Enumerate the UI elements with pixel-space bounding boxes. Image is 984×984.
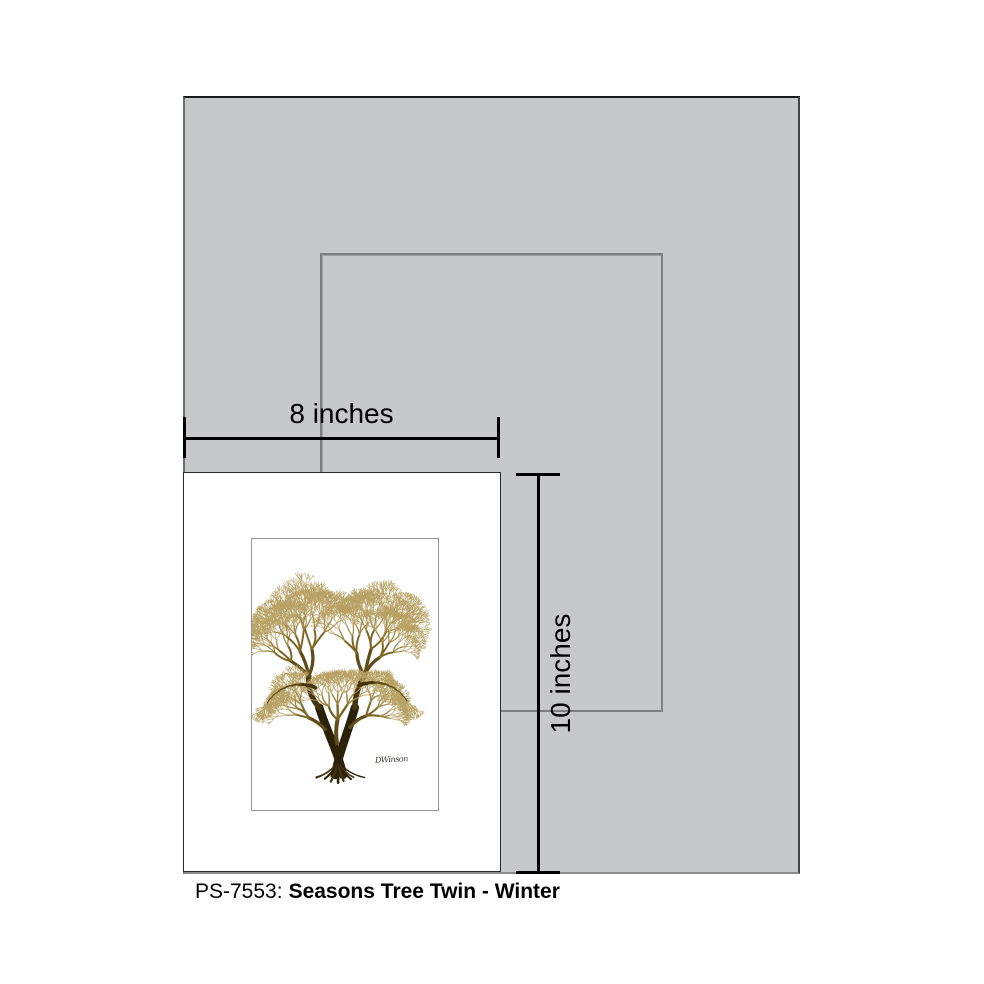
height-dimension-label: 10 inches xyxy=(546,474,578,873)
width-dimension-line xyxy=(183,437,500,440)
product-caption: PS-7553:Seasons Tree Twin - Winter xyxy=(195,880,560,904)
print-preview: DWinson xyxy=(183,472,501,872)
print-image-area: DWinson xyxy=(251,538,439,811)
product-title: Seasons Tree Twin - Winter xyxy=(289,880,560,903)
artist-signature: DWinson xyxy=(375,754,408,765)
size-comparison-figure: DWinson 8 inches 10 inches PS-7553:Seaso… xyxy=(0,0,984,984)
tree-artwork xyxy=(252,539,438,810)
width-dimension-label: 8 inches xyxy=(183,398,500,430)
height-dimension-line xyxy=(537,474,540,873)
product-code: PS-7553: xyxy=(195,880,283,903)
